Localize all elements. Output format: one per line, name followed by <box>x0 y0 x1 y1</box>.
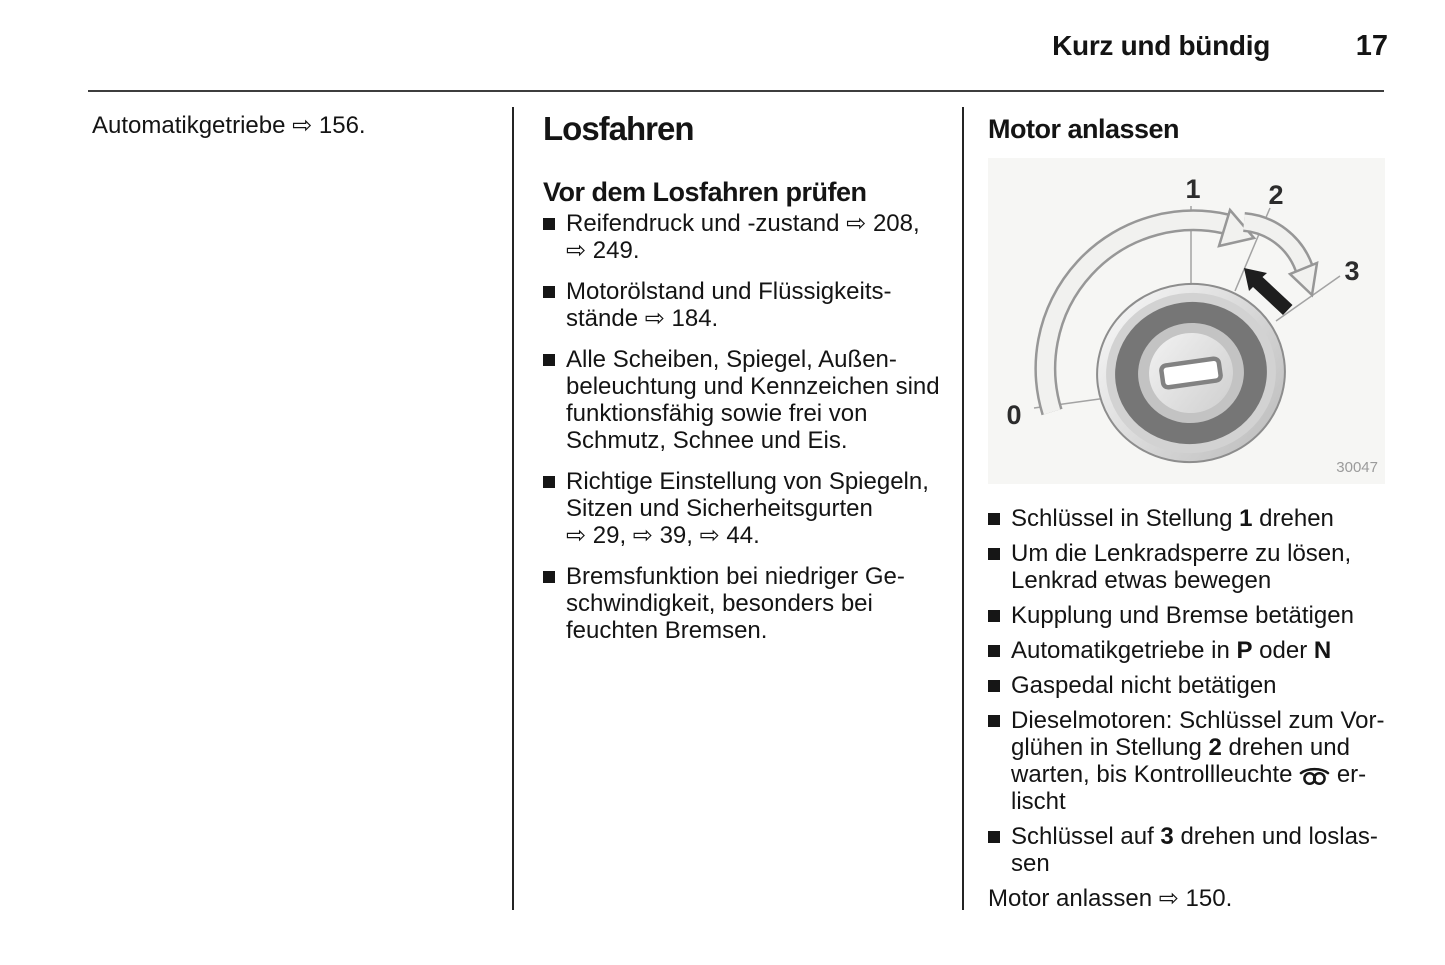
ignition-switch-diagram: 1 2 3 0 30047 <box>988 158 1385 484</box>
column-separator-right <box>962 107 964 910</box>
bullet-square-icon <box>988 645 1000 657</box>
cross-reference-automatikgetriebe: Automatikgetriebe ⇨ 156. <box>92 112 487 139</box>
checklist-item: Dieselmotoren: Schlüssel zum Vor-glühen … <box>988 707 1388 815</box>
bullet-square-icon <box>543 286 555 298</box>
middle-column: Losfahren Vor dem Losfahren prüfen Reife… <box>543 110 948 658</box>
subsection-heading-motor-anlassen: Motor anlassen <box>988 112 1388 146</box>
pre-drive-checklist: Reifendruck und -zustand ⇨ 208,⇨ 249.Mot… <box>543 210 948 644</box>
checklist-item: Gaspedal nicht betätigen <box>988 672 1388 699</box>
checklist-item: Automatikgetriebe in P oder N <box>988 637 1388 664</box>
bullet-square-icon <box>543 476 555 488</box>
checklist-item-text: Kupplung und Bremse betätigen <box>1011 602 1354 629</box>
bullet-square-icon <box>543 354 555 366</box>
checklist-item: Kupplung und Bremse betätigen <box>988 602 1388 629</box>
label-position-3: 3 <box>1344 256 1359 286</box>
label-position-0: 0 <box>1006 400 1021 430</box>
bullet-square-icon <box>988 680 1000 692</box>
page-number: 17 <box>1356 30 1388 63</box>
checklist-item: Schlüssel in Stellung 1 drehen <box>988 505 1388 532</box>
checklist-item-text: Bremsfunktion bei niedriger Ge-schwindig… <box>566 563 905 644</box>
checklist-item-text: Automatikgetriebe in P oder N <box>1011 637 1331 664</box>
checklist-item-text: Gaspedal nicht betätigen <box>1011 672 1277 699</box>
figure-image-number: 30047 <box>1336 459 1378 476</box>
column-separator-left <box>512 107 514 910</box>
checklist-item-text: Richtige Einstellung von Spiegeln,Sitzen… <box>566 468 929 549</box>
section-heading-losfahren: Losfahren <box>543 110 948 148</box>
checklist-item: Reifendruck und -zustand ⇨ 208,⇨ 249. <box>543 210 948 264</box>
label-position-2: 2 <box>1268 180 1283 210</box>
bullet-square-icon <box>988 513 1000 525</box>
checklist-item: Alle Scheiben, Spiegel, Außen-beleuchtun… <box>543 346 948 454</box>
checklist-item-text: Schlüssel in Stellung 1 drehen <box>1011 505 1334 532</box>
header-rule <box>88 90 1384 92</box>
glow-plug-indicator-icon <box>1299 766 1330 786</box>
bullet-square-icon <box>988 831 1000 843</box>
checklist-item-text: Dieselmotoren: Schlüssel zum Vor-glühen … <box>1011 707 1384 815</box>
checklist-item-text: Um die Lenkradsperre zu lösen,Lenkrad et… <box>1011 540 1351 594</box>
checklist-item-text: Alle Scheiben, Spiegel, Außen-beleuchtun… <box>566 346 940 454</box>
left-column: Automatikgetriebe ⇨ 156. <box>92 112 487 139</box>
label-position-1: 1 <box>1185 174 1200 204</box>
checklist-item: Um die Lenkradsperre zu lösen,Lenkrad et… <box>988 540 1388 594</box>
bullet-square-icon <box>543 571 555 583</box>
bullet-square-icon <box>988 548 1000 560</box>
checklist-item: Motorölstand und Flüssigkeits-stände ⇨ 1… <box>543 278 948 332</box>
checklist-item: Richtige Einstellung von Spiegeln,Sitzen… <box>543 468 948 549</box>
checklist-item-text: Motorölstand und Flüssigkeits-stände ⇨ 1… <box>566 278 891 332</box>
page-header-title: Kurz und bündig <box>1052 30 1270 62</box>
checklist-item: Schlüssel auf 3 drehen und loslas-sen <box>988 823 1388 877</box>
checklist-item: Bremsfunktion bei niedriger Ge-schwindig… <box>543 563 948 644</box>
bullet-square-icon <box>543 218 555 230</box>
checklist-item-text: Reifendruck und -zustand ⇨ 208,⇨ 249. <box>566 210 920 264</box>
bullet-square-icon <box>988 610 1000 622</box>
manual-page: { "header": { "title": "Kurz und bündig"… <box>0 0 1445 965</box>
cross-reference-motor-anlassen: Motor anlassen ⇨ 150. <box>988 885 1388 912</box>
bullet-square-icon <box>988 715 1000 727</box>
right-column: Motor anlassen <box>988 112 1388 912</box>
engine-start-checklist: Schlüssel in Stellung 1 drehenUm die Len… <box>988 505 1388 877</box>
ignition-switch-figure: 1 2 3 0 30047 <box>988 158 1385 484</box>
subsection-heading-vor-dem-losfahren: Vor dem Losfahren prüfen <box>543 176 948 208</box>
checklist-item-text: Schlüssel auf 3 drehen und loslas-sen <box>1011 823 1378 877</box>
